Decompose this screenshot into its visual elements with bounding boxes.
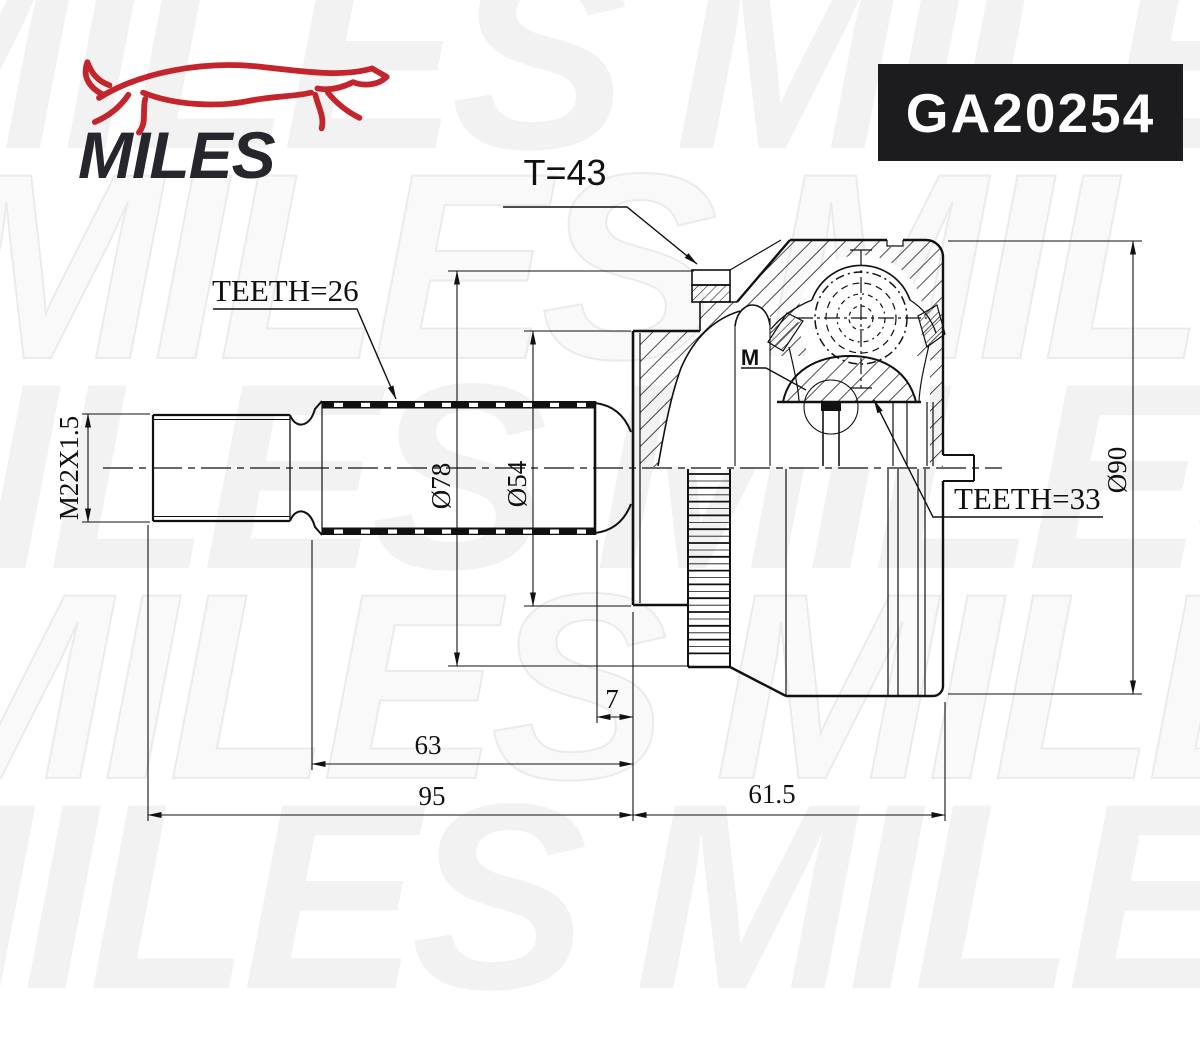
callout-teeth26: TEETH=26 [212, 273, 359, 308]
callout-teeth33: TEETH=33 [954, 481, 1101, 516]
part-number: GA20254 [906, 81, 1155, 145]
miles-logo: MILES [78, 40, 393, 193]
leader-teeth26 [213, 309, 396, 399]
dim-d90-label: Ø90 [1102, 447, 1132, 494]
dim-63-label: 63 [415, 730, 442, 760]
dim-95-label: 95 [419, 781, 446, 811]
callout-m: M [741, 345, 759, 370]
dim-thread-label: M22X1.5 [54, 416, 84, 520]
dim-d54-label: Ø54 [502, 460, 532, 507]
dim-61-5-label: 61.5 [748, 779, 795, 809]
dimensions [82, 241, 1142, 821]
abs-tone-ring [688, 469, 730, 667]
leader-t43 [503, 207, 697, 264]
part-number-box: GA20254 [878, 64, 1183, 161]
callout-t43: T=43 [523, 152, 606, 193]
dim-d78-label: Ø78 [426, 463, 456, 510]
abs-ring-section [692, 270, 730, 302]
dim-7-label: 7 [605, 684, 619, 714]
